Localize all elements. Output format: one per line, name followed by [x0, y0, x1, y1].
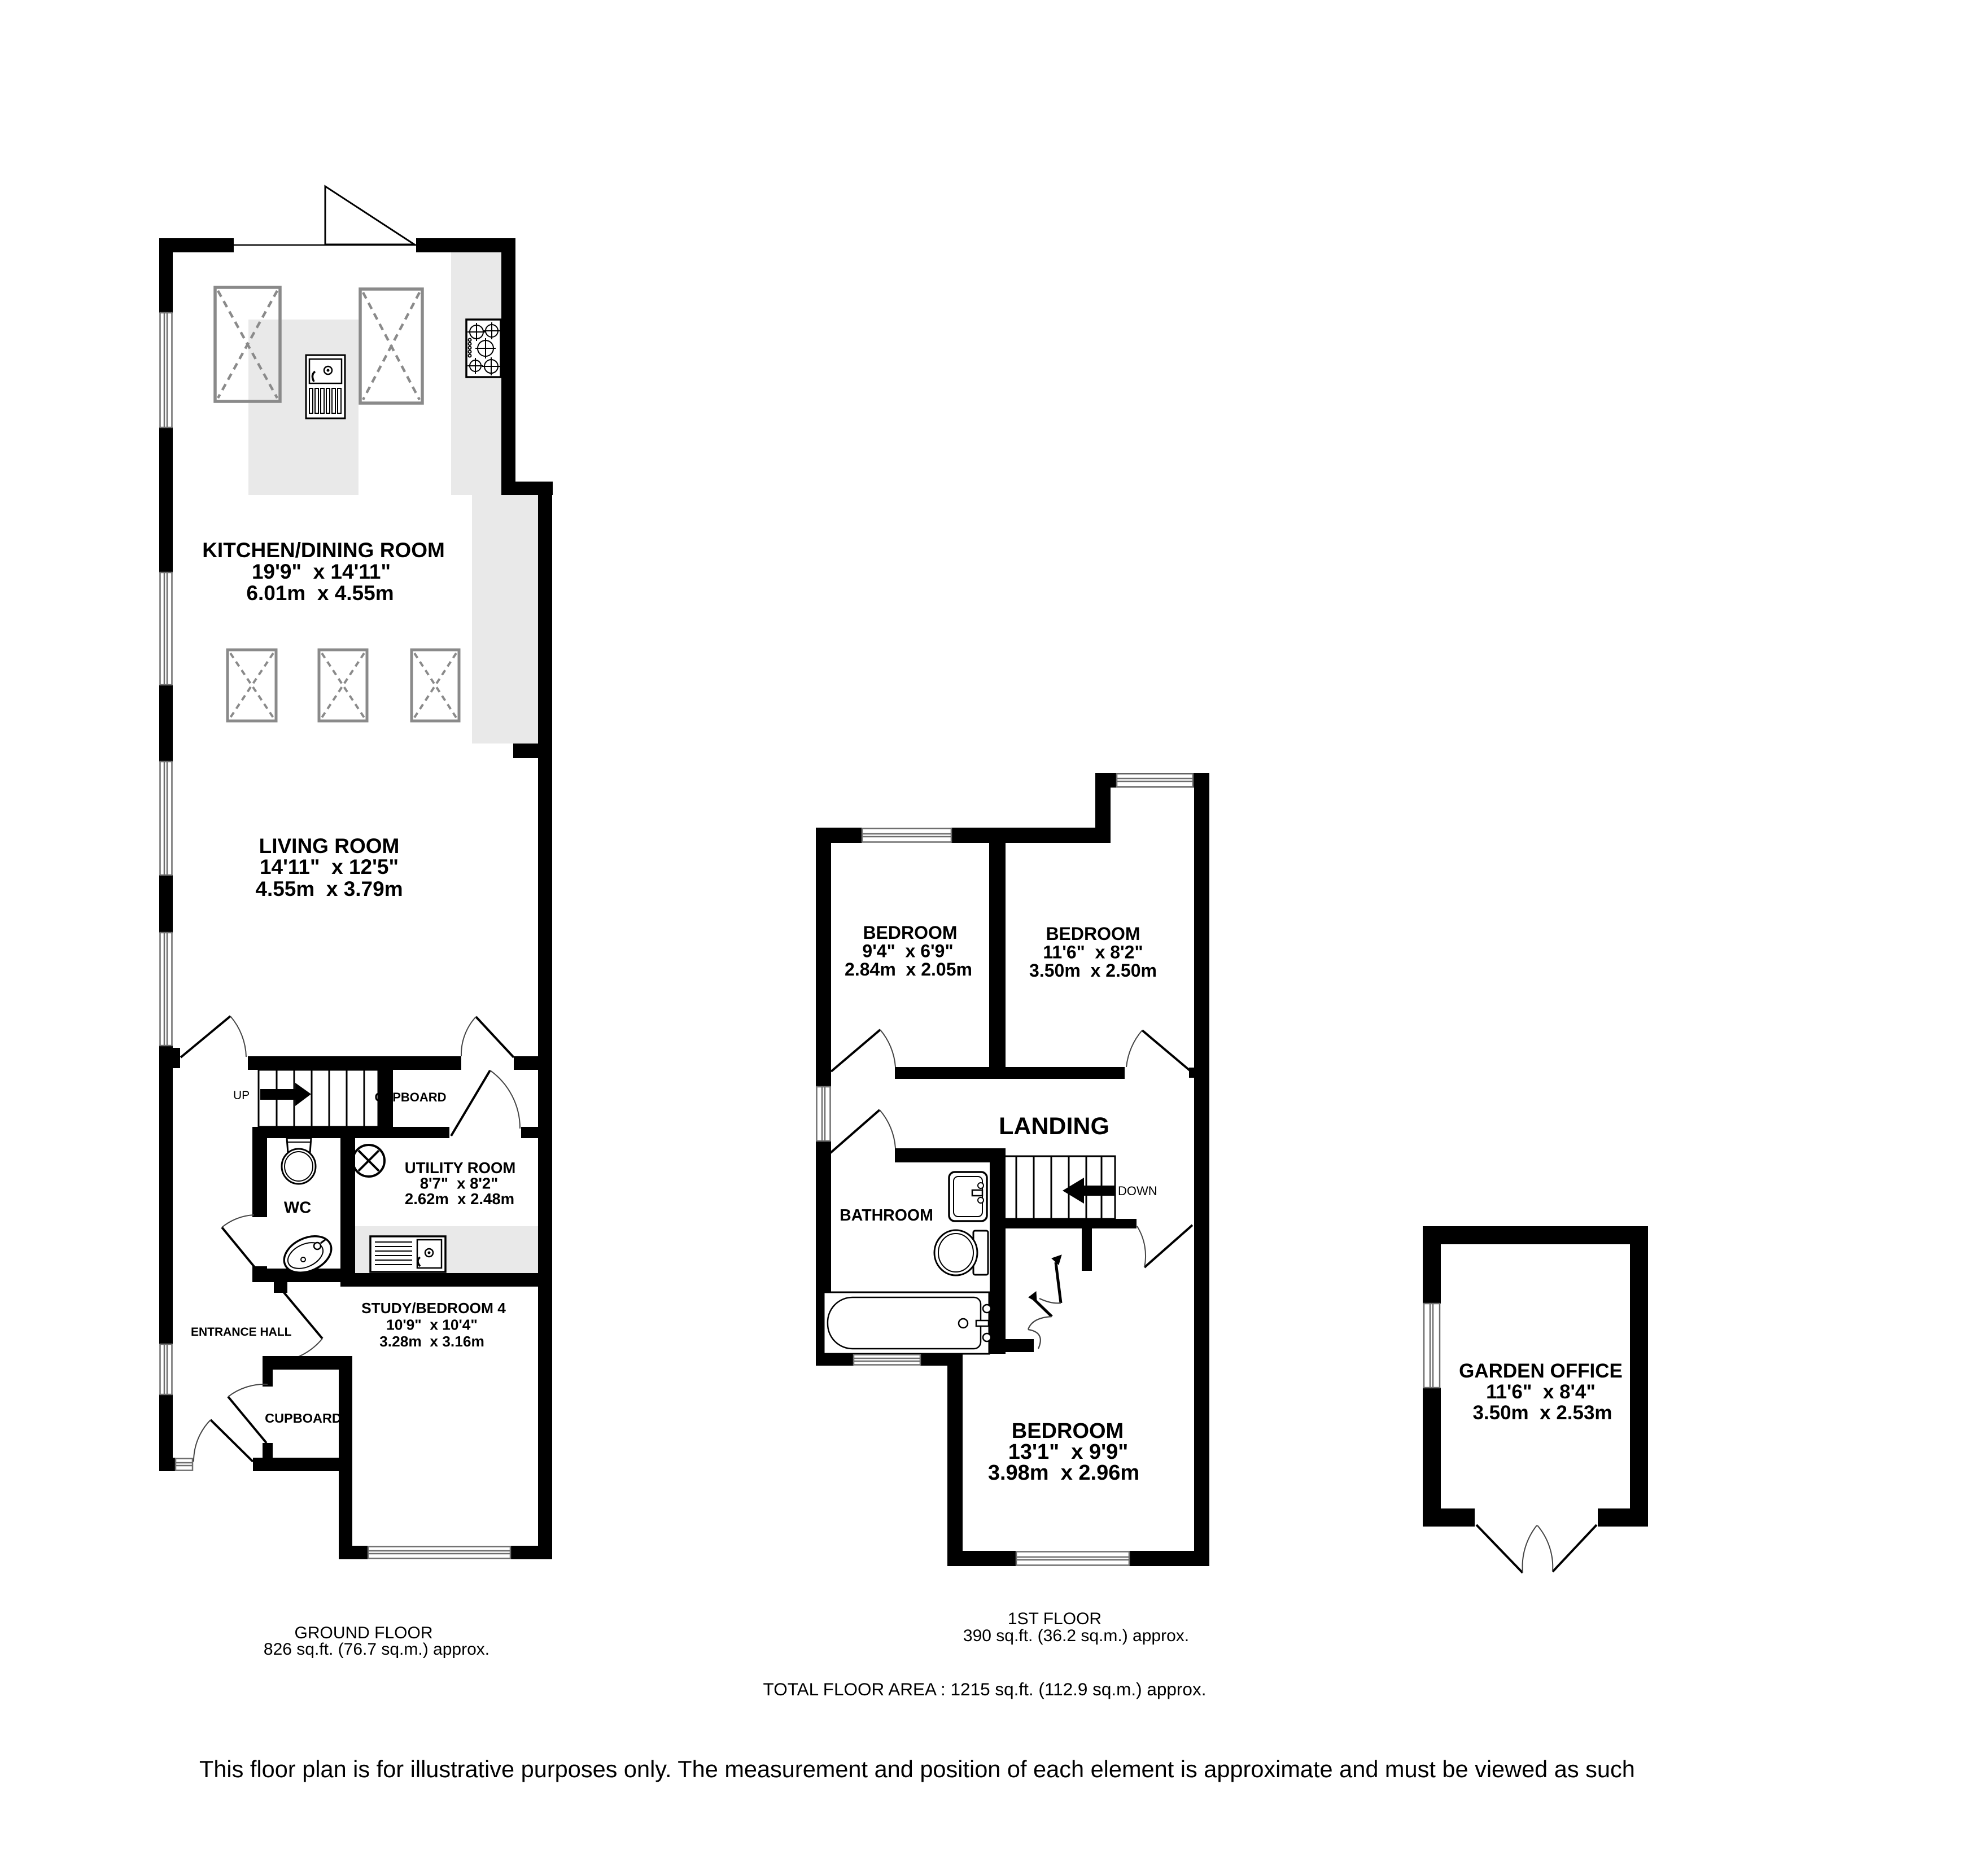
svg-text:10'9" x 10'4": 10'9" x 10'4" — [386, 1317, 478, 1333]
svg-text:826 sq.ft. (76.7 sq.m.) approx: 826 sq.ft. (76.7 sq.m.) approx. — [264, 1640, 489, 1659]
svg-text:3.28m x 3.16m: 3.28m x 3.16m — [379, 1333, 484, 1350]
svg-text:LIVING ROOM: LIVING ROOM — [259, 834, 400, 858]
svg-text:8'7" x 8'2": 8'7" x 8'2" — [420, 1175, 499, 1192]
svg-text:DOWN: DOWN — [1118, 1184, 1157, 1198]
svg-text:TOTAL FLOOR AREA : 1215 sq.ft.: TOTAL FLOOR AREA : 1215 sq.ft. (112.9 sq… — [763, 1679, 1207, 1699]
svg-text:11'6" x 8'2": 11'6" x 8'2" — [1043, 942, 1143, 963]
svg-text:2.62m x 2.48m: 2.62m x 2.48m — [405, 1190, 514, 1208]
svg-text:BATHROOM: BATHROOM — [840, 1206, 933, 1225]
svg-text:3.98m x 2.96m: 3.98m x 2.96m — [988, 1461, 1139, 1485]
svg-text:3.50m x 2.50m: 3.50m x 2.50m — [1029, 960, 1157, 981]
svg-text:2.84m x 2.05m: 2.84m x 2.05m — [845, 959, 972, 979]
svg-text:BEDROOM: BEDROOM — [1012, 1419, 1124, 1443]
svg-text:ENTRANCE HALL: ENTRANCE HALL — [191, 1326, 292, 1339]
svg-text:4.55m x 3.79m: 4.55m x 3.79m — [255, 877, 403, 900]
svg-text:STUDY/BEDROOM 4: STUDY/BEDROOM 4 — [361, 1300, 506, 1317]
svg-text:9'4" x 6'9": 9'4" x 6'9" — [862, 941, 953, 961]
svg-text:BEDROOM: BEDROOM — [863, 922, 957, 943]
svg-text:3.50m x 2.53m: 3.50m x 2.53m — [1472, 1402, 1612, 1424]
svg-text:CUPBOARD: CUPBOARD — [374, 1090, 446, 1104]
svg-text:UTILITY ROOM: UTILITY ROOM — [405, 1159, 516, 1177]
svg-text:11'6" x 8'4": 11'6" x 8'4" — [1486, 1381, 1596, 1403]
svg-text:6.01m x 4.55m: 6.01m x 4.55m — [246, 581, 394, 605]
svg-text:1ST FLOOR: 1ST FLOOR — [1008, 1610, 1102, 1628]
svg-text:GARDEN OFFICE: GARDEN OFFICE — [1459, 1360, 1623, 1382]
svg-text:CUPBOARD: CUPBOARD — [265, 1411, 342, 1425]
svg-text:13'1" x 9'9": 13'1" x 9'9" — [1008, 1440, 1129, 1464]
svg-text:LANDING: LANDING — [999, 1113, 1109, 1140]
svg-text:This floor plan is for illustr: This floor plan is for illustrative purp… — [199, 1756, 1635, 1782]
svg-text:390 sq.ft. (36.2 sq.m.) approx: 390 sq.ft. (36.2 sq.m.) approx. — [963, 1626, 1189, 1645]
svg-text:19'9" x 14'11": 19'9" x 14'11" — [252, 560, 391, 583]
svg-text:WC: WC — [284, 1199, 311, 1217]
svg-text:BEDROOM: BEDROOM — [1046, 924, 1140, 944]
svg-text:UP: UP — [233, 1089, 250, 1102]
svg-text:KITCHEN/DINING ROOM: KITCHEN/DINING ROOM — [202, 539, 445, 562]
svg-text:14'11" x 12'5": 14'11" x 12'5" — [260, 855, 399, 878]
